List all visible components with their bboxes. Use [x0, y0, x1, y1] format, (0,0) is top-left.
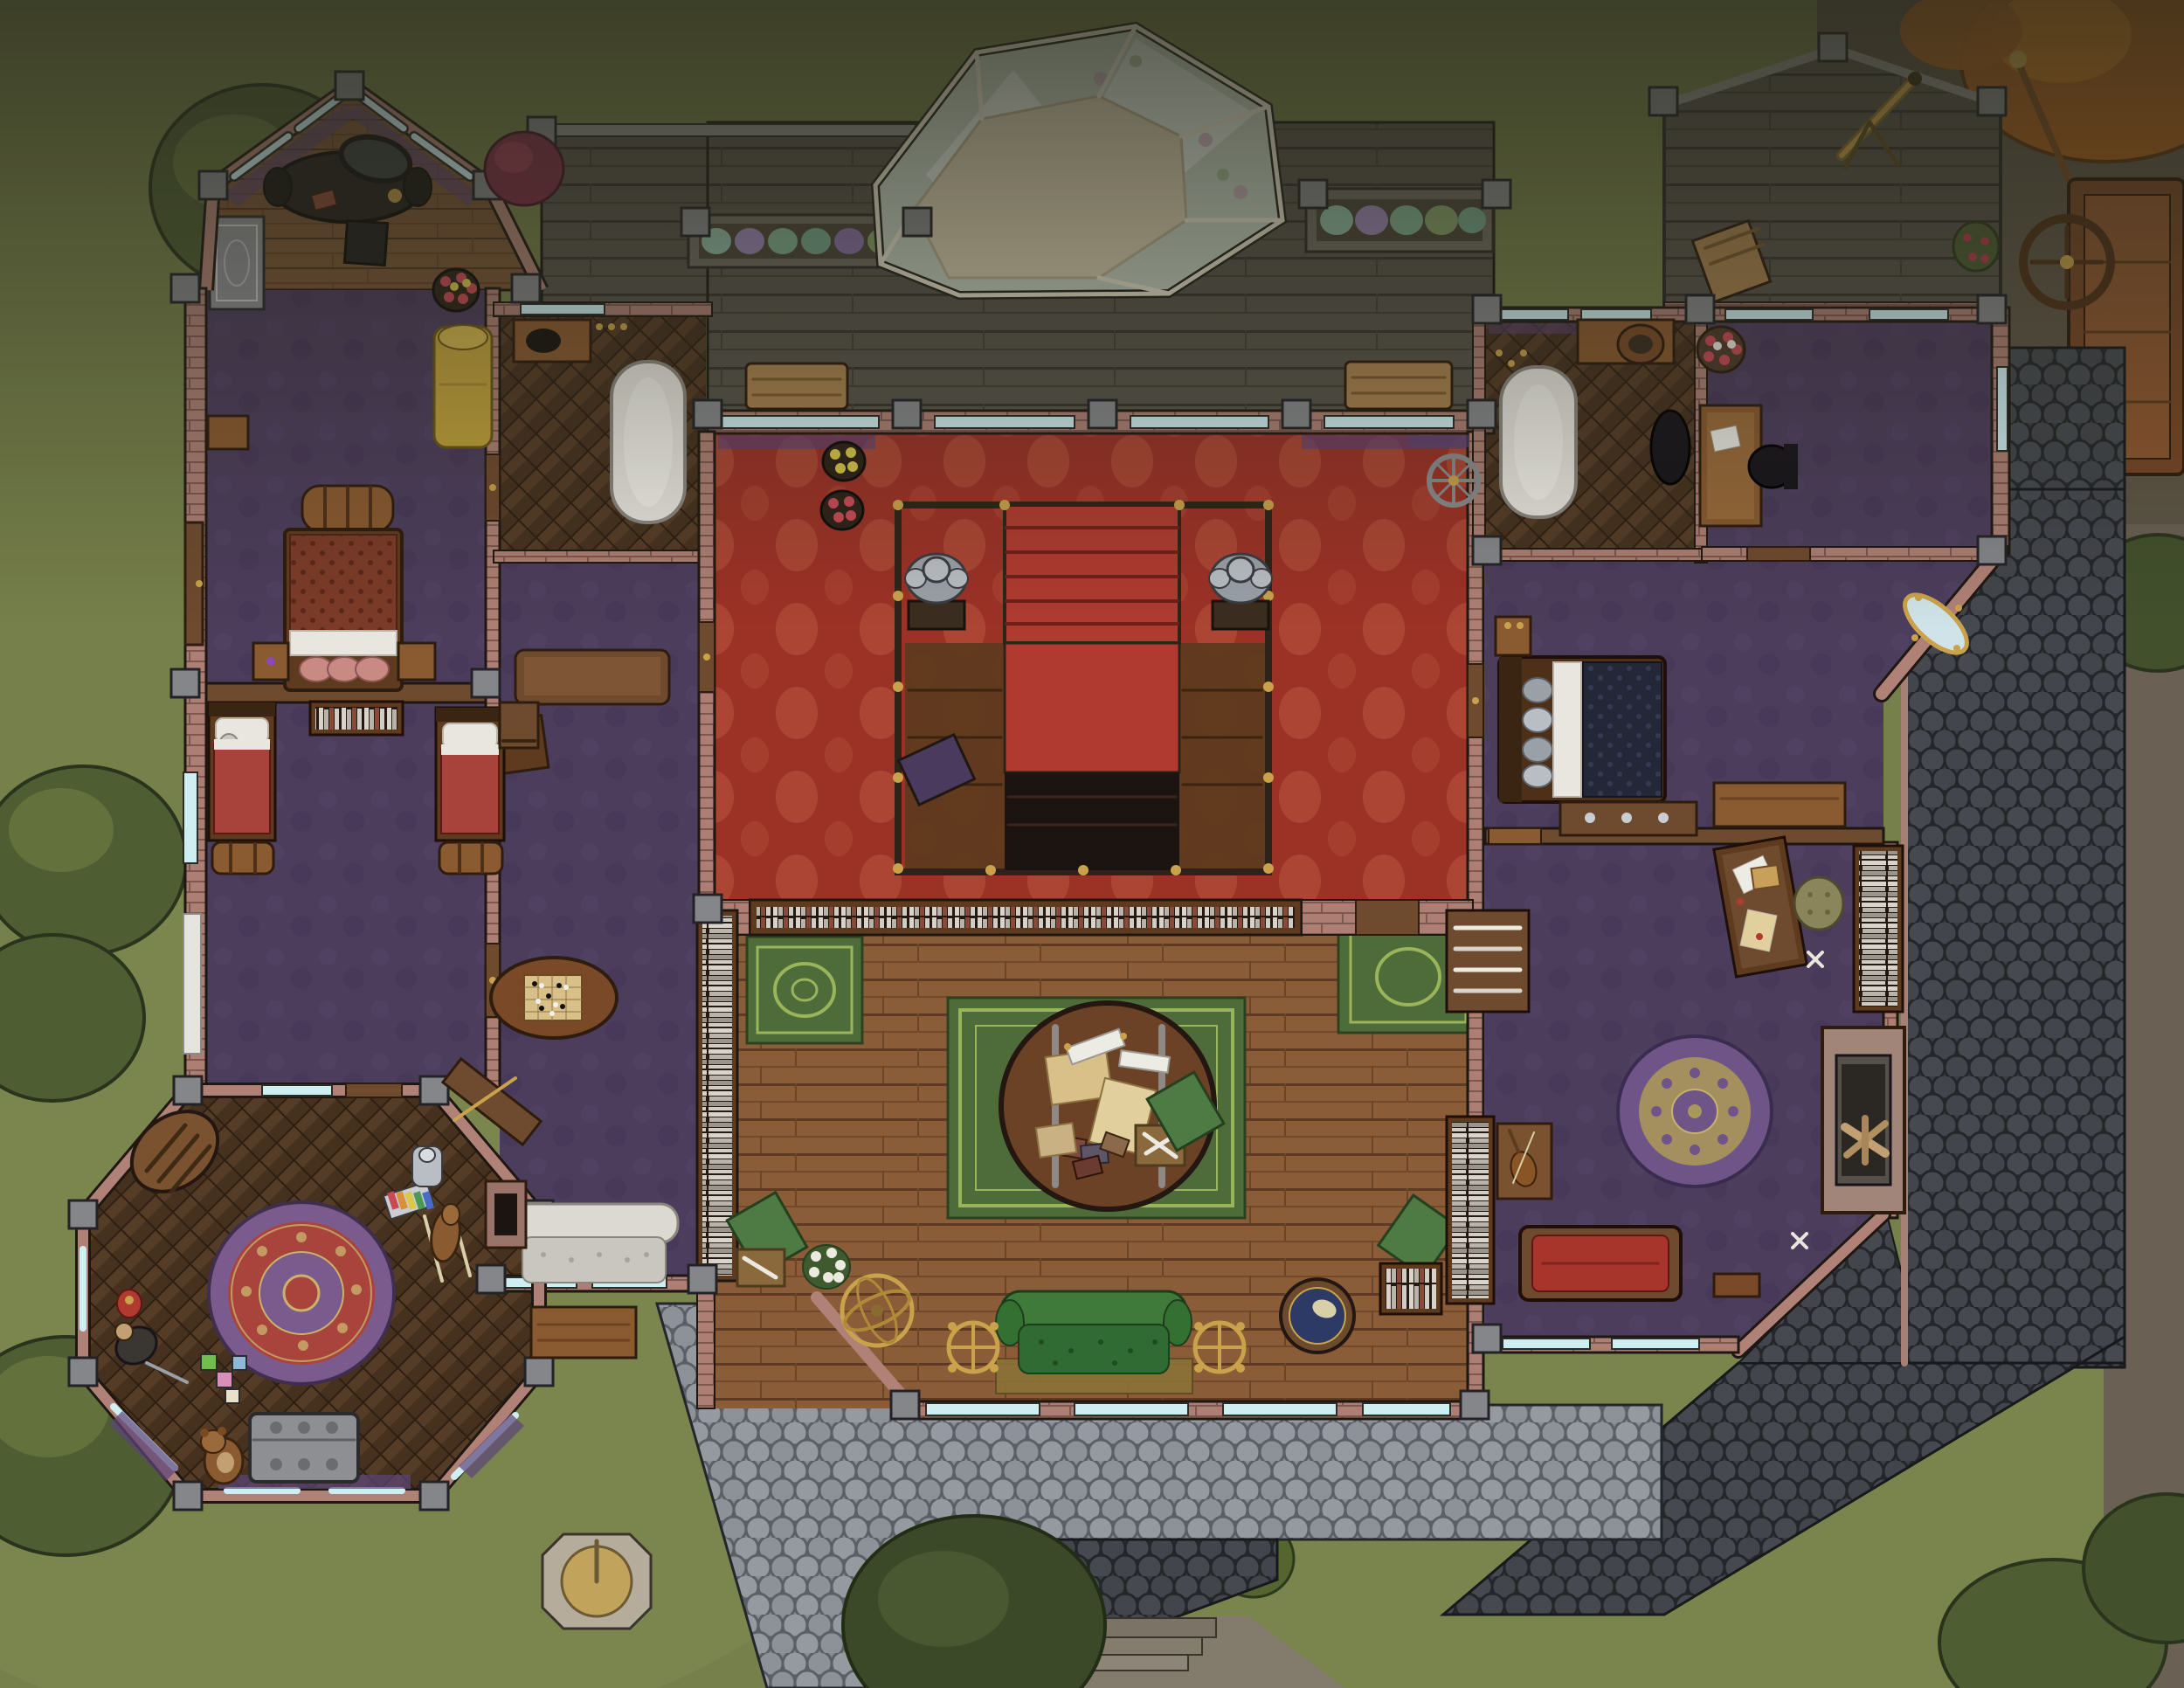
- window: [1503, 1339, 1590, 1349]
- map-shape: [871, 1304, 883, 1317]
- map-shape: [419, 1148, 435, 1162]
- kids-window-curtain: [183, 914, 201, 1054]
- vignette: [0, 0, 2184, 629]
- map-shape: [757, 907, 1295, 928]
- map-shape: [225, 1389, 239, 1403]
- map-shape: [1499, 657, 1522, 802]
- map-shape: [1019, 1325, 1169, 1373]
- map-shape: [266, 657, 275, 666]
- stair-side-east: [1179, 643, 1265, 868]
- book: [1751, 865, 1780, 889]
- stair-void: [1005, 772, 1179, 870]
- door: [346, 1083, 402, 1097]
- stone-post: [525, 1358, 553, 1386]
- map-shape: [1523, 737, 1552, 762]
- stone-post: [694, 895, 722, 923]
- map-shape: [522, 1237, 666, 1283]
- door: [1356, 900, 1419, 935]
- kids-chest: [212, 842, 273, 874]
- stone-post: [1461, 1391, 1489, 1419]
- map-shape: [1523, 708, 1552, 732]
- map-shape: [703, 654, 710, 661]
- window: [1223, 1403, 1337, 1415]
- map-shape: [9, 788, 114, 872]
- map-shape: [356, 657, 389, 681]
- stair-landing: [1005, 643, 1179, 772]
- study-sideboard: [1447, 910, 1529, 1012]
- toy-blocks: [201, 1354, 217, 1370]
- window: [1612, 1339, 1699, 1349]
- map-shape: [524, 657, 660, 695]
- map-shape: [125, 1296, 134, 1304]
- stone-post: [1473, 1325, 1501, 1352]
- window: [926, 1403, 1040, 1415]
- map-shape: [214, 744, 270, 834]
- green-rug-west: [747, 937, 862, 1043]
- map-shape: [1472, 697, 1479, 704]
- window: [1075, 1403, 1188, 1415]
- map-shape: [217, 1372, 232, 1387]
- map-shape: [1859, 851, 1897, 1007]
- map-shape: [315, 707, 397, 730]
- map-shape: [1452, 1122, 1489, 1298]
- bed-bench: [1714, 783, 1845, 827]
- outdoor-bench: [531, 1307, 636, 1358]
- nightstand: [398, 643, 435, 680]
- octagon-window-north: [262, 1085, 332, 1096]
- map-shape: [232, 1356, 246, 1370]
- stone-post: [174, 1482, 202, 1510]
- stone-post: [69, 1358, 97, 1386]
- map-shape: [217, 1452, 234, 1473]
- map-shape: [1688, 1104, 1702, 1118]
- wall-segment: [697, 1281, 715, 1408]
- map-shape: [441, 744, 499, 755]
- map-shape: [494, 1193, 517, 1235]
- window: [1363, 1403, 1450, 1415]
- map-shape: [115, 1323, 133, 1340]
- stone-post: [174, 1076, 202, 1104]
- door: [1489, 828, 1541, 844]
- stone-post: [420, 1482, 448, 1510]
- kids-chest: [439, 842, 502, 874]
- study-chair: [1794, 877, 1843, 930]
- map-shape: [1386, 1269, 1436, 1309]
- map-shape: [1553, 662, 1581, 797]
- map-shape: [284, 1276, 319, 1311]
- stone-post: [171, 669, 199, 697]
- map-canvas: [0, 0, 2184, 1688]
- map-shape: [878, 1551, 1009, 1647]
- map-shape: [290, 631, 397, 655]
- map-shape: [1523, 764, 1552, 787]
- stone-post: [891, 1391, 919, 1419]
- map-shape: [442, 1204, 460, 1225]
- parcel: [1036, 1123, 1076, 1158]
- stone-post: [688, 1265, 716, 1293]
- map-shape: [1583, 662, 1662, 797]
- map-shape: [441, 750, 499, 834]
- map-shape: [214, 739, 270, 750]
- map-shape: [209, 702, 275, 716]
- map-shape: [436, 708, 504, 722]
- stool: [1714, 1274, 1759, 1297]
- battle-map: [0, 0, 2184, 1688]
- map-shape: [1289, 1288, 1345, 1344]
- map-shape: [1523, 678, 1552, 702]
- map-shape: [443, 723, 497, 748]
- stone-post: [472, 669, 500, 697]
- west-window: [183, 772, 197, 863]
- stone-post: [69, 1200, 97, 1228]
- stone-post: [477, 1265, 505, 1293]
